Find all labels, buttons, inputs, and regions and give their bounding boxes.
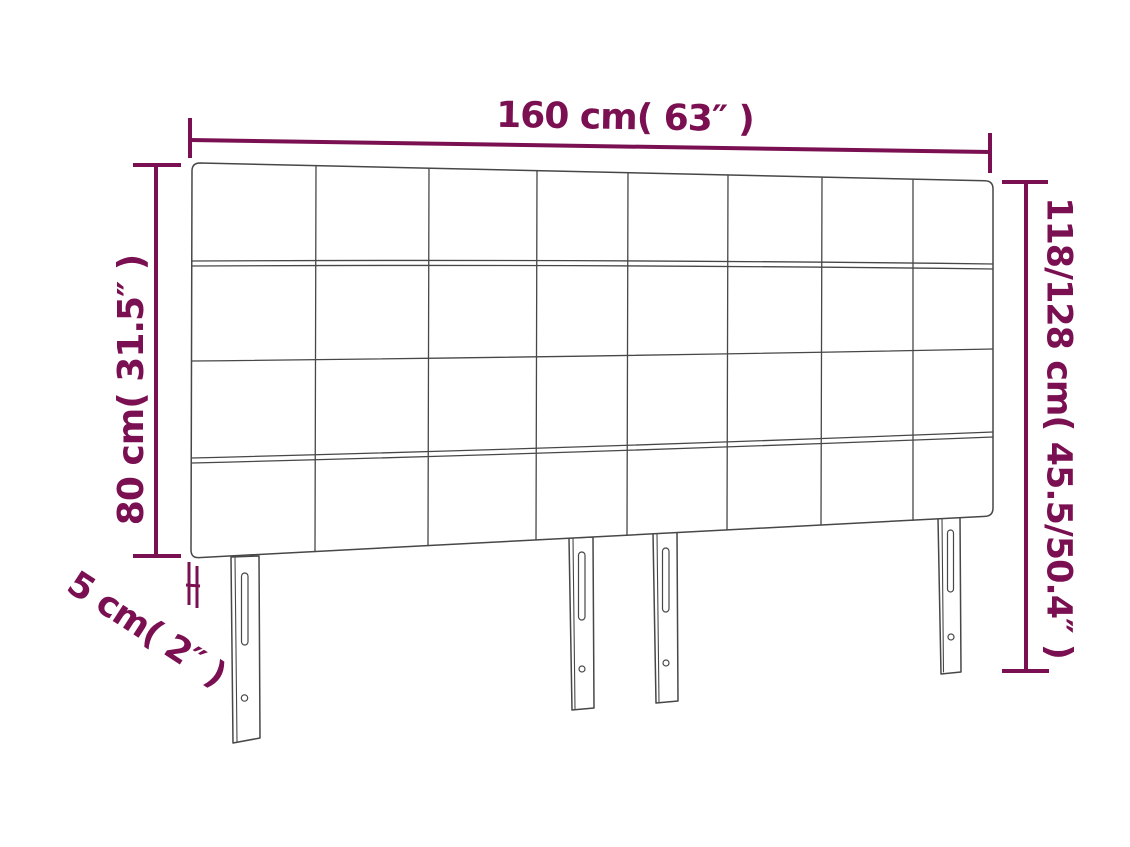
headboard-leg-3	[653, 532, 678, 703]
headboard-body	[191, 163, 993, 743]
headboard-leg-2	[569, 537, 594, 710]
headboard-leg-4	[938, 516, 961, 674]
headboard-leg-1	[231, 556, 260, 743]
total-height-dimension-label: 118/128 cm( 45.5/50.4″ )	[1041, 197, 1076, 659]
panel-height-dimension-label: 80 cm( 31.5″ )	[114, 255, 150, 525]
dimension-diagram: 160 cm( 63″ ) 80 cm( 31.5″ ) 118/128 cm(…	[0, 0, 1130, 847]
width-dimension-label: 160 cm( 63″ )	[496, 98, 754, 138]
depth-dimension-marker	[186, 562, 200, 608]
